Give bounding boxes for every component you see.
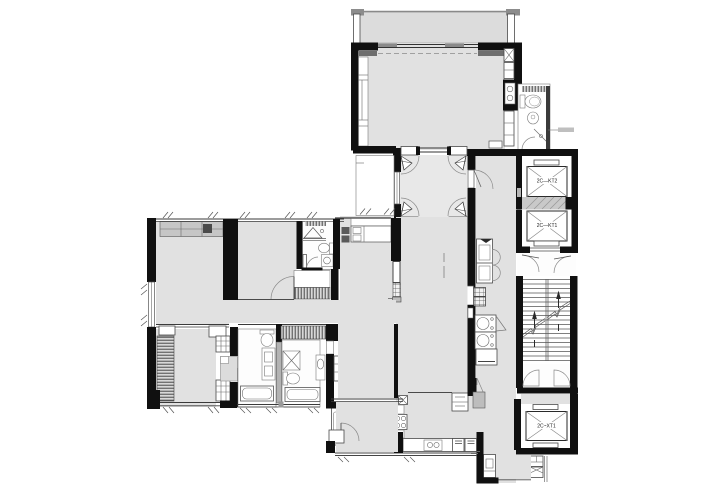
svg-text:2C—KT1: 2C—KT1 xyxy=(537,223,558,229)
svg-text:2C—KT2: 2C—KT2 xyxy=(537,179,558,185)
svg-text:2C~XT1: 2C~XT1 xyxy=(537,424,556,430)
